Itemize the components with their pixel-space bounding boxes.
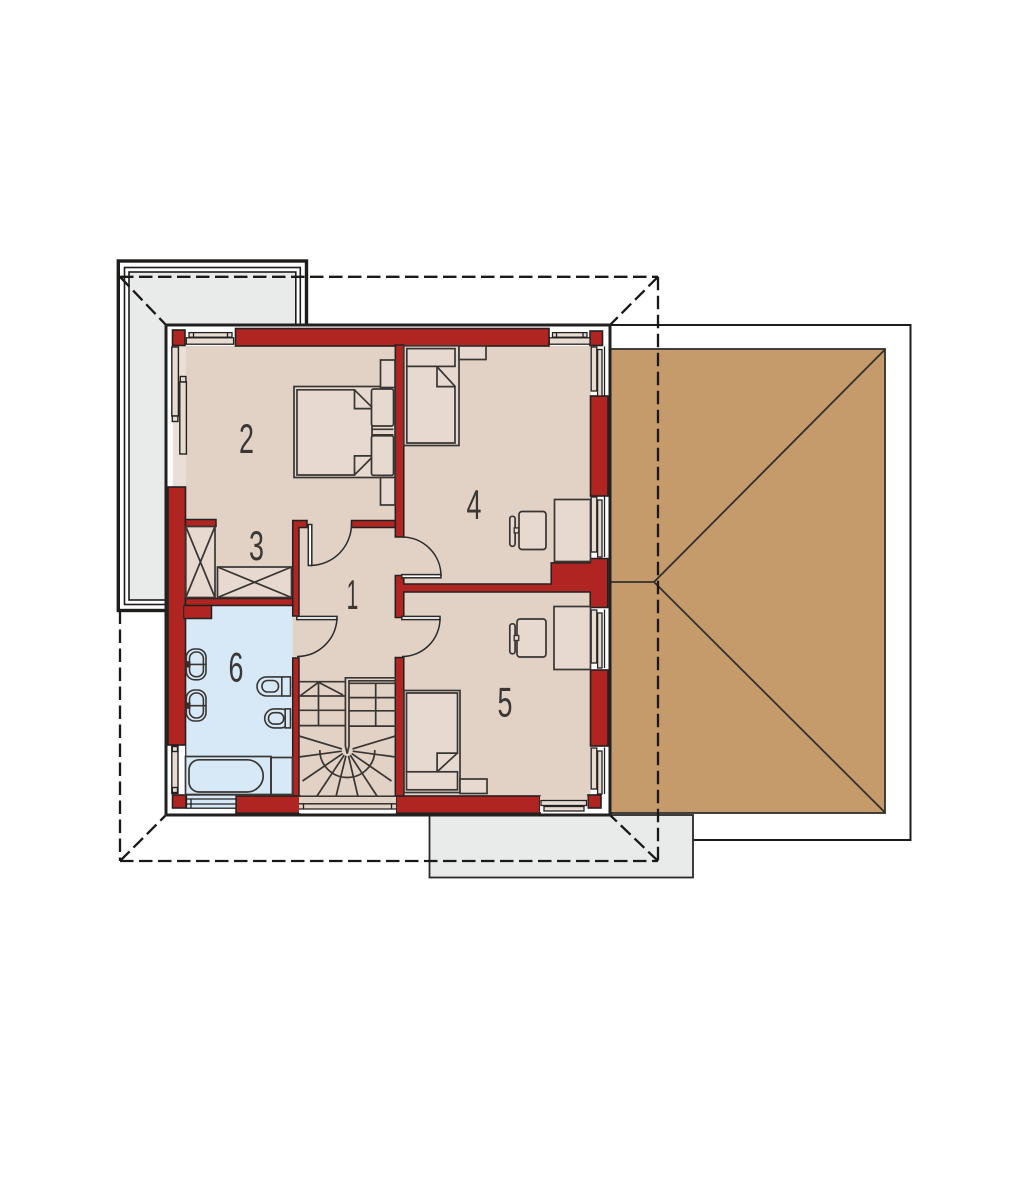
- svg-text:6: 6: [229, 645, 244, 691]
- svg-text:1: 1: [347, 572, 359, 619]
- svg-text:5: 5: [498, 680, 513, 726]
- svg-text:4: 4: [467, 482, 482, 528]
- svg-text:2: 2: [239, 416, 254, 462]
- svg-text:3: 3: [249, 523, 264, 569]
